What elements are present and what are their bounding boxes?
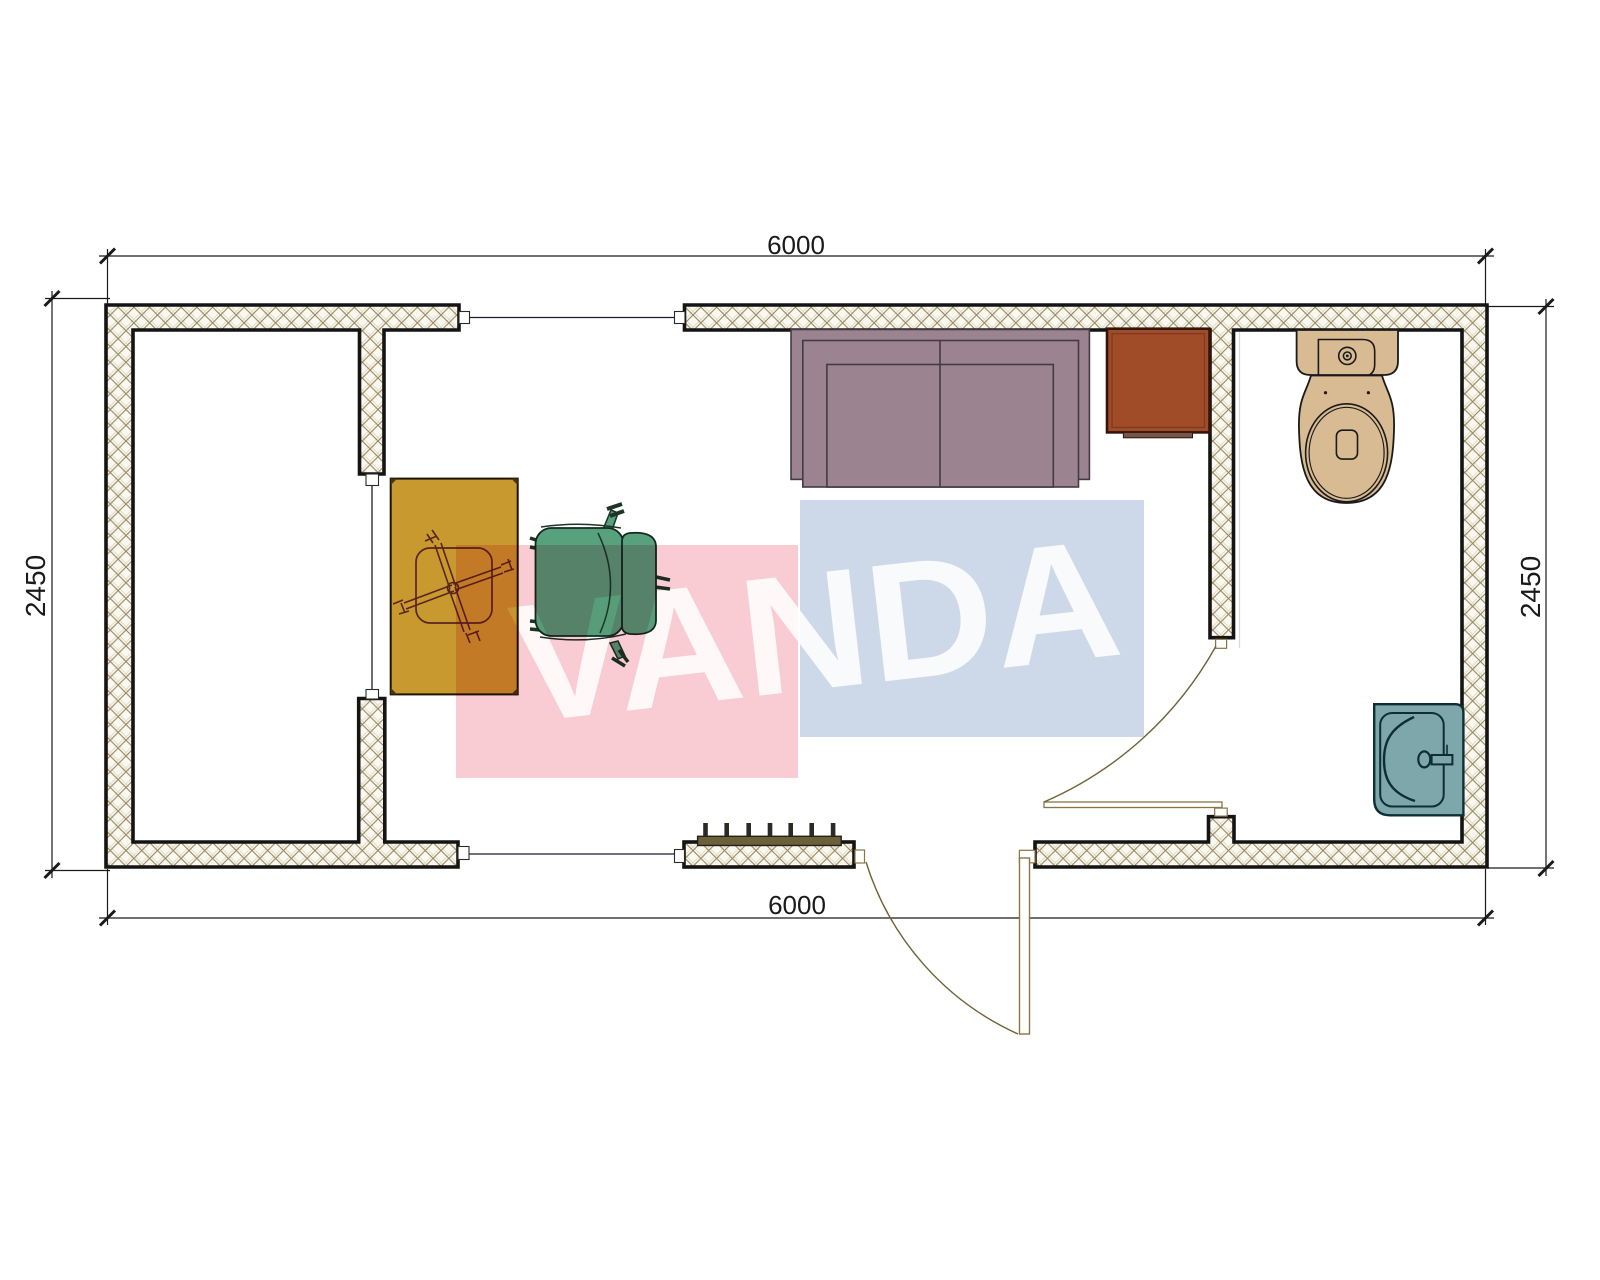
svg-text:2450: 2450 — [20, 555, 51, 617]
svg-text:6000: 6000 — [767, 230, 825, 260]
svg-text:6000: 6000 — [768, 890, 826, 920]
svg-text:2450: 2450 — [1515, 556, 1546, 618]
